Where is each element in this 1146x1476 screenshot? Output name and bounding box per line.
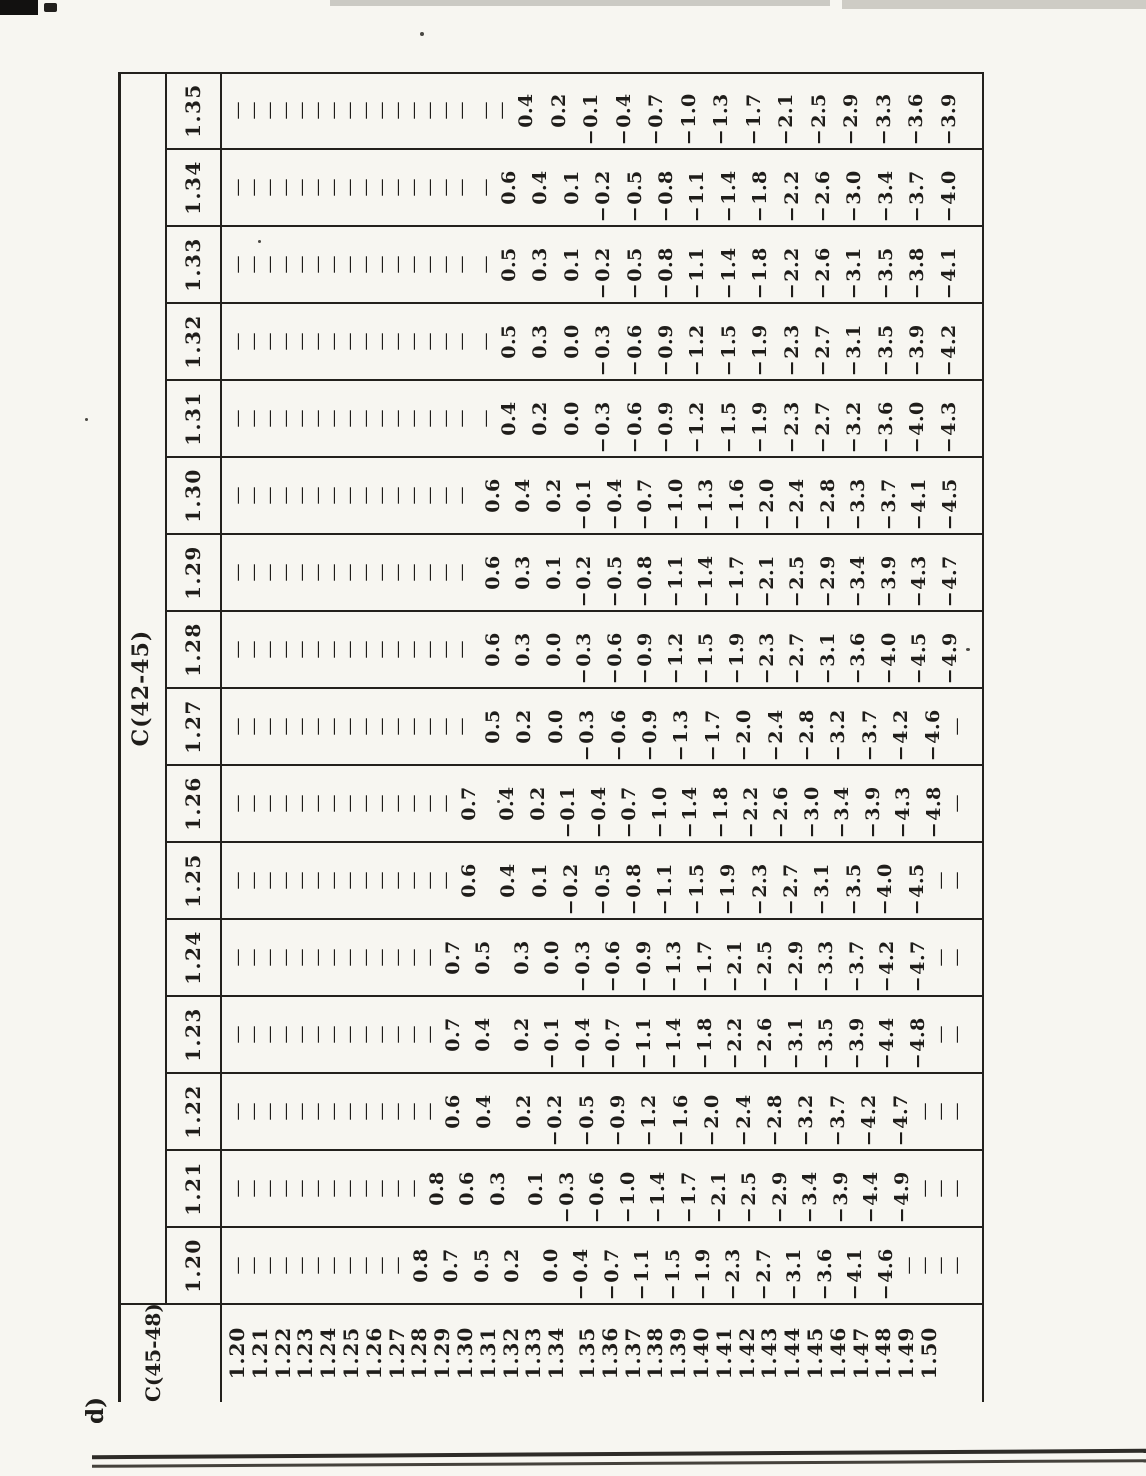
minus-sign: −: [839, 205, 870, 222]
value-cell: −3.3: [811, 919, 841, 996]
minus-sign: −: [651, 205, 682, 222]
value-cell: −0.1: [553, 765, 583, 842]
value-cell: −2.4: [782, 457, 812, 534]
value-cell: −2.8: [760, 1073, 791, 1150]
value-cell: 0.3: [508, 534, 538, 611]
minus-sign: −: [870, 898, 901, 915]
value-cell: −0.2: [569, 534, 599, 611]
value-cell: −3.0: [797, 765, 827, 842]
empty-cell: —: [406, 1150, 422, 1227]
minus-sign: −: [745, 359, 776, 376]
value-cell: −1.5: [714, 303, 745, 380]
minus-sign: −: [598, 1052, 628, 1069]
minus-sign: −: [738, 128, 771, 145]
value-cell: −0.6: [620, 303, 651, 380]
value-cell: −3.3: [843, 457, 873, 534]
minus-sign: −: [808, 359, 839, 376]
value-cell: −3.7: [823, 1073, 854, 1150]
minus-sign: −: [766, 821, 796, 838]
minus-sign: −: [902, 898, 933, 915]
minus-sign: −: [588, 359, 619, 376]
empty-cell: —: [478, 149, 494, 226]
minus-sign: −: [745, 282, 776, 299]
value-cell: −4.0: [874, 611, 904, 688]
minus-sign: −: [843, 513, 873, 530]
empty-cell: —: [949, 1150, 965, 1227]
value-cell: −1.6: [722, 457, 752, 534]
minus-sign: −: [553, 821, 583, 838]
speck: [85, 418, 88, 421]
minus-sign: −: [572, 1129, 603, 1146]
value-cell: −1.6: [666, 1073, 697, 1150]
minus-sign: −: [843, 590, 873, 607]
minus-sign: −: [871, 436, 902, 453]
value-cell: −1.2: [682, 303, 713, 380]
value-cell: 0.7: [436, 1227, 466, 1304]
minus-sign: −: [627, 1283, 657, 1300]
col-header: 1.27: [166, 688, 222, 765]
minus-sign: −: [904, 667, 934, 684]
minus-sign: −: [568, 1052, 598, 1069]
value-cell: −0.6: [620, 380, 651, 457]
value-cell: −2.1: [704, 1150, 734, 1227]
value-cell: −2.8: [813, 457, 843, 534]
minus-sign: −: [674, 1206, 704, 1223]
value-cell: −4.2: [934, 303, 965, 380]
value-cell: −0.3: [588, 380, 619, 457]
value-cell: 0.5: [468, 919, 498, 996]
value-cell: −2.9: [781, 919, 811, 996]
minus-sign: −: [634, 1129, 665, 1146]
value-cell: −2.3: [777, 380, 808, 457]
value-cell: 0.4: [494, 380, 525, 457]
minus-sign: −: [811, 975, 841, 992]
value-cell: −3.6: [900, 72, 933, 149]
empty-cell: —: [454, 149, 470, 226]
value-cell: 0.5: [494, 303, 525, 380]
minus-sign: −: [569, 667, 599, 684]
figure-label: d): [82, 1397, 109, 1424]
minus-sign: −: [682, 205, 713, 222]
minus-sign: −: [651, 359, 682, 376]
value-cell: −2.4: [729, 1073, 760, 1150]
minus-sign: −: [569, 513, 599, 530]
value-cell: −2.6: [750, 996, 780, 1073]
value-cell: 0.6: [438, 1073, 469, 1150]
value-cell: −3.5: [839, 842, 870, 919]
row-label: 1.39: [667, 1304, 690, 1402]
value-cell: −1.7: [738, 72, 771, 149]
empty-cell: —: [949, 765, 965, 842]
value-cell: 0.2: [543, 72, 576, 149]
value-cell: −0.1: [575, 72, 608, 149]
value-cell: −3.5: [871, 226, 902, 303]
value-cell: −2.1: [720, 919, 750, 996]
value-cell: −0.5: [588, 842, 619, 919]
col-header: 1.31: [166, 380, 222, 457]
value-cell: −4.1: [934, 226, 965, 303]
minus-sign: −: [856, 1206, 886, 1223]
minus-sign: −: [734, 1206, 764, 1223]
value-cell: −3.9: [902, 303, 933, 380]
value-cell: −3.7: [874, 457, 904, 534]
minus-sign: −: [682, 436, 713, 453]
value-cell: −4.0: [870, 842, 901, 919]
minus-sign: −: [782, 590, 812, 607]
col-header: 1.30: [166, 457, 222, 534]
value-cell: −0.9: [603, 1073, 634, 1150]
value-cell: 0.6: [478, 611, 508, 688]
col-header: 1.23: [166, 996, 222, 1073]
value-cell: −3.6: [871, 380, 902, 457]
minus-sign: −: [722, 590, 752, 607]
empty-cell: —: [438, 842, 454, 919]
col-header: 1.29: [166, 534, 222, 611]
minus-sign: −: [566, 1283, 596, 1300]
scanned-page: d) C(42-45) C(45-48) 1.201.211.221.231.2…: [0, 0, 1146, 1476]
empty-cell: —: [478, 380, 494, 457]
minus-sign: −: [904, 513, 934, 530]
value-cell: −4.8: [919, 765, 949, 842]
value-cell: −2.6: [808, 226, 839, 303]
minus-sign: −: [808, 436, 839, 453]
value-cell: −2.4: [761, 688, 792, 765]
minus-sign: −: [887, 1206, 917, 1223]
value-cell: 0.4: [510, 72, 543, 149]
minus-sign: −: [874, 590, 904, 607]
minus-sign: −: [675, 821, 705, 838]
minus-sign: −: [714, 436, 745, 453]
minus-sign: −: [613, 1206, 643, 1223]
value-cell: 0.0: [537, 919, 567, 996]
value-cell: −0.8: [651, 149, 682, 226]
value-cell: −1.0: [613, 1150, 643, 1227]
value-cell: −2.8: [792, 688, 823, 765]
minus-sign: −: [765, 1206, 795, 1223]
row-label: 1.48: [872, 1304, 895, 1402]
minus-sign: −: [620, 359, 651, 376]
value-cell: −0.3: [569, 611, 599, 688]
value-cell: −4.5: [935, 457, 965, 534]
page-edge-line: [92, 1459, 1146, 1468]
row-label: 1.32: [500, 1304, 523, 1402]
value-cell: −3.6: [810, 1227, 840, 1304]
row-label: 1.36: [599, 1304, 622, 1402]
value-cell: −0.9: [651, 303, 682, 380]
value-cell: −3.1: [839, 303, 870, 380]
minus-sign: −: [588, 205, 619, 222]
minus-sign: −: [858, 821, 888, 838]
minus-sign: −: [704, 1206, 734, 1223]
row-label: 1.40: [690, 1304, 713, 1402]
value-cell: −0.8: [619, 842, 650, 919]
minus-sign: −: [620, 205, 651, 222]
value-cell: −0.7: [614, 765, 644, 842]
value-cell: −4.4: [856, 1150, 886, 1227]
minus-sign: −: [868, 128, 901, 145]
value-cell: 0.4: [508, 457, 538, 534]
minus-sign: −: [750, 975, 780, 992]
value-cell: 0.3: [507, 919, 537, 996]
minus-sign: −: [823, 1129, 854, 1146]
minus-sign: −: [666, 744, 697, 761]
value-cell: −3.2: [839, 380, 870, 457]
minus-sign: −: [854, 1129, 885, 1146]
value-cell: −2.7: [776, 842, 807, 919]
minus-sign: −: [651, 436, 682, 453]
minus-sign: −: [714, 205, 745, 222]
scan-blot: [0, 0, 38, 15]
minus-sign: −: [781, 1052, 811, 1069]
value-cell: −2.0: [697, 1073, 728, 1150]
col-header: 1.33: [166, 226, 222, 303]
value-cell: −4.2: [872, 919, 902, 996]
minus-sign: −: [826, 1206, 856, 1223]
minus-sign: −: [572, 744, 603, 761]
row-label: 1.38: [644, 1304, 667, 1402]
minus-sign: −: [839, 436, 870, 453]
minus-sign: −: [619, 898, 650, 915]
value-cell: −3.5: [871, 303, 902, 380]
col-header: 1.21: [166, 1150, 222, 1227]
minus-sign: −: [598, 975, 628, 992]
value-cell: −2.5: [803, 72, 836, 149]
value-cell: 0.2: [507, 996, 537, 1073]
value-cell: −4.0: [902, 380, 933, 457]
empty-cell: —: [949, 842, 965, 919]
minus-sign: −: [807, 898, 838, 915]
value-cell: −1.7: [690, 919, 720, 996]
value-cell: −0.7: [640, 72, 673, 149]
row-label: 1.33: [522, 1304, 545, 1402]
row-label: 1.31: [477, 1304, 500, 1402]
minus-sign: −: [582, 1206, 612, 1223]
value-cell: 0.4: [469, 1073, 500, 1150]
minus-sign: −: [673, 128, 706, 145]
minus-sign: −: [902, 359, 933, 376]
value-cell: −0.8: [630, 534, 660, 611]
value-cell: −3.4: [795, 1150, 825, 1227]
row-label: 1.21: [249, 1304, 272, 1402]
minus-sign: −: [604, 744, 635, 761]
minus-sign: −: [934, 436, 965, 453]
minus-sign: −: [614, 821, 644, 838]
value-cell: −2.6: [766, 765, 796, 842]
value-cell: −0.3: [552, 1150, 582, 1227]
scan-blot: [44, 3, 57, 12]
minus-sign: −: [691, 590, 721, 607]
minus-sign: −: [886, 744, 917, 761]
minus-sign: −: [752, 590, 782, 607]
value-cell: −1.9: [722, 611, 752, 688]
col-header: 1.28: [166, 611, 222, 688]
col-header: 1.22: [166, 1073, 222, 1150]
value-cell: −1.1: [682, 226, 713, 303]
value-cell: −1.2: [682, 380, 713, 457]
minus-sign: −: [706, 821, 736, 838]
minus-sign: −: [808, 205, 839, 222]
minus-sign: −: [823, 744, 854, 761]
minus-sign: −: [713, 898, 744, 915]
value-cell: 0.6: [478, 534, 508, 611]
value-cell: 0.2: [523, 765, 553, 842]
minus-sign: −: [904, 590, 934, 607]
minus-sign: −: [603, 1129, 634, 1146]
value-cell: −4.3: [934, 380, 965, 457]
col-header: 1.32: [166, 303, 222, 380]
value-cell: 0.7: [438, 996, 468, 1073]
minus-sign: −: [776, 898, 807, 915]
value-cell: −2.2: [720, 996, 750, 1073]
value-cell: −0.7: [597, 1227, 627, 1304]
value-cell: 0.1: [539, 534, 569, 611]
value-cell: 0.0: [557, 380, 588, 457]
empty-cell: —: [438, 765, 454, 842]
minus-sign: −: [705, 128, 738, 145]
value-cell: −1.4: [714, 226, 745, 303]
value-cell: −3.7: [855, 688, 886, 765]
value-cell: 0.3: [508, 611, 538, 688]
value-cell: 0.1: [521, 1150, 551, 1227]
minus-sign: −: [933, 128, 966, 145]
value-cell: −4.0: [934, 149, 965, 226]
value-cell: −4.5: [902, 842, 933, 919]
value-cell: −0.9: [629, 919, 659, 996]
value-cell: −1.3: [666, 688, 697, 765]
scan-streak: [842, 0, 1146, 9]
empty-cell: —: [949, 1227, 965, 1304]
value-cell: −1.5: [682, 842, 713, 919]
minus-sign: −: [691, 667, 721, 684]
value-cell: −3.4: [843, 534, 873, 611]
value-cell: 0.3: [483, 1150, 513, 1227]
empty-cell: —: [454, 226, 470, 303]
value-cell: −1.4: [691, 534, 721, 611]
minus-sign: −: [749, 1283, 779, 1300]
empty-cell: —: [422, 996, 438, 1073]
row-label: 1.47: [850, 1304, 873, 1402]
value-cell: 0.4: [468, 996, 498, 1073]
empty-cell: —: [949, 996, 965, 1073]
value-cell: −0.1: [537, 996, 567, 1073]
value-cell: 0.2: [509, 688, 540, 765]
minus-sign: −: [569, 590, 599, 607]
value-cell: 0.0: [557, 303, 588, 380]
value-cell: −1.5: [658, 1227, 688, 1304]
value-cell: 0.2: [497, 1227, 527, 1304]
value-cell: −4.7: [886, 1073, 917, 1150]
minus-sign: −: [792, 744, 823, 761]
value-cell: −0.9: [630, 611, 660, 688]
col-header: 1.26: [166, 765, 222, 842]
value-cell: −2.5: [782, 534, 812, 611]
value-cell: −1.4: [659, 996, 689, 1073]
value-cell: −4.2: [854, 1073, 885, 1150]
minus-sign: −: [795, 1206, 825, 1223]
value-cell: −1.1: [627, 1227, 657, 1304]
row-label: 1.29: [431, 1304, 454, 1402]
rotated-table-block: d) C(42-45) C(45-48) 1.201.211.221.231.2…: [118, 72, 984, 1402]
value-cell: −3.0: [839, 149, 870, 226]
minus-sign: −: [902, 205, 933, 222]
row-label: 1.42: [736, 1304, 759, 1402]
row-label: 1.25: [340, 1304, 363, 1402]
minus-sign: −: [629, 975, 659, 992]
minus-sign: −: [803, 128, 836, 145]
minus-sign: −: [661, 667, 691, 684]
value-cell: −2.3: [752, 611, 782, 688]
row-label: 1.20: [226, 1304, 249, 1402]
value-cell: −1.3: [705, 72, 738, 149]
value-cell: −1.7: [674, 1150, 704, 1227]
minus-sign: −: [588, 436, 619, 453]
value-cell: 0.2: [509, 1073, 540, 1150]
minus-sign: −: [760, 1129, 791, 1146]
minus-sign: −: [659, 975, 689, 992]
value-cell: −0.4: [600, 457, 630, 534]
page-edge-line: [92, 1449, 1146, 1459]
row-label: 1.43: [758, 1304, 781, 1402]
value-cell: −0.4: [568, 996, 598, 1073]
value-cell: −4.6: [871, 1227, 901, 1304]
row-label: 1.24: [317, 1304, 340, 1402]
minus-sign: −: [658, 1283, 688, 1300]
minus-sign: −: [729, 744, 760, 761]
value-cell: −3.9: [826, 1150, 856, 1227]
minus-sign: −: [842, 1052, 872, 1069]
minus-sign: −: [827, 821, 857, 838]
value-cell: 0.7: [454, 765, 484, 842]
value-cell: −2.2: [736, 765, 766, 842]
empty-cell: —: [494, 72, 510, 149]
minus-sign: −: [902, 436, 933, 453]
minus-sign: −: [813, 590, 843, 607]
row-label: 1.30: [454, 1304, 477, 1402]
value-cell: −1.2: [661, 611, 691, 688]
value-cell: −3.1: [781, 996, 811, 1073]
minus-sign: −: [782, 667, 812, 684]
minus-sign: −: [718, 1283, 748, 1300]
minus-sign: −: [682, 359, 713, 376]
value-cell: −4.4: [872, 996, 902, 1073]
minus-sign: −: [839, 898, 870, 915]
minus-sign: −: [666, 1129, 697, 1146]
row-label: 1.35: [576, 1304, 599, 1402]
minus-sign: −: [575, 128, 608, 145]
minus-sign: −: [588, 898, 619, 915]
minus-sign: −: [810, 1283, 840, 1300]
value-cell: 0.2: [525, 380, 556, 457]
scan-streak: [330, 0, 830, 6]
value-cell: −2.9: [765, 1150, 795, 1227]
minus-sign: −: [872, 975, 902, 992]
value-cell: 0.2: [539, 457, 569, 534]
value-cell: −1.0: [673, 72, 706, 149]
value-cell: −2.2: [777, 149, 808, 226]
value-cell: −3.2: [791, 1073, 822, 1150]
value-cell: 0.7: [438, 919, 468, 996]
col-header: 1.20: [166, 1227, 222, 1304]
value-cell: −0.7: [598, 996, 628, 1073]
value-cell: −2.0: [752, 457, 782, 534]
value-cell: −1.1: [682, 149, 713, 226]
value-cell: −1.3: [691, 457, 721, 534]
minus-sign: −: [770, 128, 803, 145]
minus-sign: −: [720, 1052, 750, 1069]
value-cell: −1.8: [745, 226, 776, 303]
value-cell: −0.2: [556, 842, 587, 919]
minus-sign: −: [808, 282, 839, 299]
